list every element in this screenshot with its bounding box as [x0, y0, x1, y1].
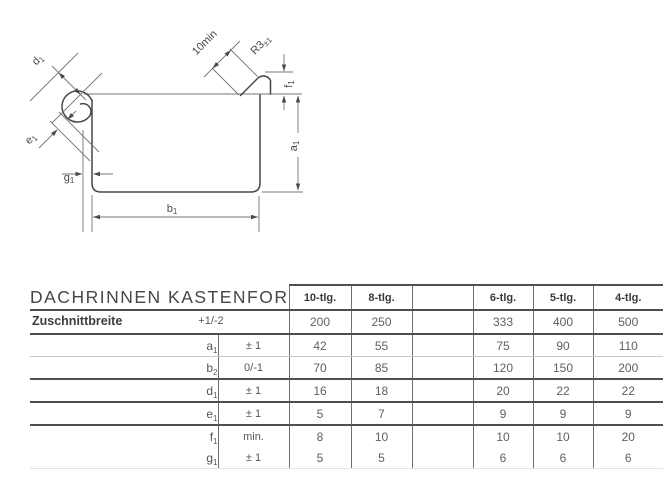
value-cell [412, 379, 473, 402]
label-d1: d1 [30, 52, 47, 69]
value-cell: 10 [533, 425, 593, 447]
value-cell: 9 [473, 402, 533, 425]
value-cell: 10 [473, 425, 533, 447]
label-flange-min: 10min [190, 28, 220, 58]
value-cell: 5 [289, 402, 351, 425]
label-e1: e1 [23, 131, 40, 148]
tolerance-cell: ± 1 [218, 447, 289, 469]
value-cell [412, 334, 473, 357]
value-cell: 55 [351, 334, 412, 357]
row-d1: d1 ± 1 16 18 20 22 22 [30, 379, 663, 402]
col-header-8tlg: 8-tlg. [351, 285, 412, 310]
value-cell: 333 [473, 310, 533, 334]
value-cell: 75 [473, 334, 533, 357]
value-cell: 42 [289, 334, 351, 357]
dim-flange-min: 10min [190, 28, 257, 95]
rear-edge-hook [241, 76, 271, 96]
dimension-table: DACHRINNEN KASTENFORM 10-tlg. 8-tlg. 6-t… [30, 284, 663, 469]
label-radius: R3±1 [249, 32, 275, 58]
dim-b1: b1 [92, 195, 259, 232]
value-cell: 8 [289, 425, 351, 447]
cut-width-label-cell: Zuschnittbreite +1/-2 [30, 310, 289, 334]
value-cell [412, 447, 473, 469]
value-cell: 120 [473, 357, 533, 380]
param-label: d1 [30, 379, 218, 402]
label-a1: a1 [288, 140, 301, 151]
row-b2: b2 0/-1 70 85 120 150 200 [30, 357, 663, 380]
value-cell: 200 [593, 357, 663, 380]
value-cell: 22 [593, 379, 663, 402]
row-e1: e1 ± 1 5 7 9 9 9 [30, 402, 663, 425]
value-cell: 10 [351, 425, 412, 447]
profile-outline [92, 95, 260, 192]
value-cell: 200 [289, 310, 351, 334]
value-cell: 18 [351, 379, 412, 402]
value-cell: 110 [593, 334, 663, 357]
value-cell: 70 [289, 357, 351, 380]
value-cell: 20 [473, 379, 533, 402]
value-cell: 85 [351, 357, 412, 380]
value-cell: 90 [533, 334, 593, 357]
col-header-6tlg: 6-tlg. [473, 285, 533, 310]
bead-curl [62, 91, 92, 122]
col-header-empty [412, 285, 473, 310]
cut-width-label: Zuschnittbreite [32, 314, 122, 328]
tolerance-cell: 0/-1 [218, 357, 289, 380]
value-cell: 250 [351, 310, 412, 334]
tolerance-cell: ± 1 [218, 379, 289, 402]
value-cell: 20 [593, 425, 663, 447]
row-f1: f1 min. 8 10 10 10 20 [30, 425, 663, 447]
col-header-10tlg: 10-tlg. [289, 285, 351, 310]
tolerance-cell: min. [218, 425, 289, 447]
value-cell: 400 [533, 310, 593, 334]
dim-f1: f1 [265, 54, 296, 110]
param-label: b2 [30, 357, 218, 380]
gutter-profile-drawing: d1 e1 g1 b1 [0, 0, 670, 280]
value-cell: 5 [289, 447, 351, 469]
value-cell: 150 [533, 357, 593, 380]
value-cell: 16 [289, 379, 351, 402]
value-cell [412, 357, 473, 380]
value-cell [412, 425, 473, 447]
dim-a1: a1 [288, 96, 301, 191]
value-cell: 6 [593, 447, 663, 469]
param-label: f1 [30, 425, 218, 447]
datasheet-page: d1 e1 g1 b1 [0, 0, 670, 491]
row-a1: a1 ± 1 42 55 75 90 110 [30, 334, 663, 357]
value-cell [412, 310, 473, 334]
table-title: DACHRINNEN KASTENFORM [30, 285, 289, 310]
value-cell: 22 [533, 379, 593, 402]
param-label: g1 [30, 447, 218, 469]
cut-width-tolerance: +1/-2 [161, 315, 261, 327]
value-cell: 6 [473, 447, 533, 469]
value-cell [412, 402, 473, 425]
col-header-4tlg: 4-tlg. [593, 285, 663, 310]
value-cell: 6 [533, 447, 593, 469]
tolerance-cell: ± 1 [218, 334, 289, 357]
value-cell: 9 [593, 402, 663, 425]
param-label: a1 [30, 334, 218, 357]
param-label: e1 [30, 402, 218, 425]
row-g1: g1 ± 1 5 5 6 6 6 [30, 447, 663, 469]
value-cell: 7 [351, 402, 412, 425]
label-b1: b1 [167, 203, 178, 216]
tolerance-cell: ± 1 [218, 402, 289, 425]
cut-width-row: Zuschnittbreite +1/-2 200 250 333 400 50… [30, 310, 663, 334]
value-cell: 500 [593, 310, 663, 334]
value-cell: 9 [533, 402, 593, 425]
col-header-5tlg: 5-tlg. [533, 285, 593, 310]
table-header-row: DACHRINNEN KASTENFORM 10-tlg. 8-tlg. 6-t… [30, 285, 663, 310]
value-cell: 5 [351, 447, 412, 469]
label-f1: f1 [283, 80, 296, 88]
